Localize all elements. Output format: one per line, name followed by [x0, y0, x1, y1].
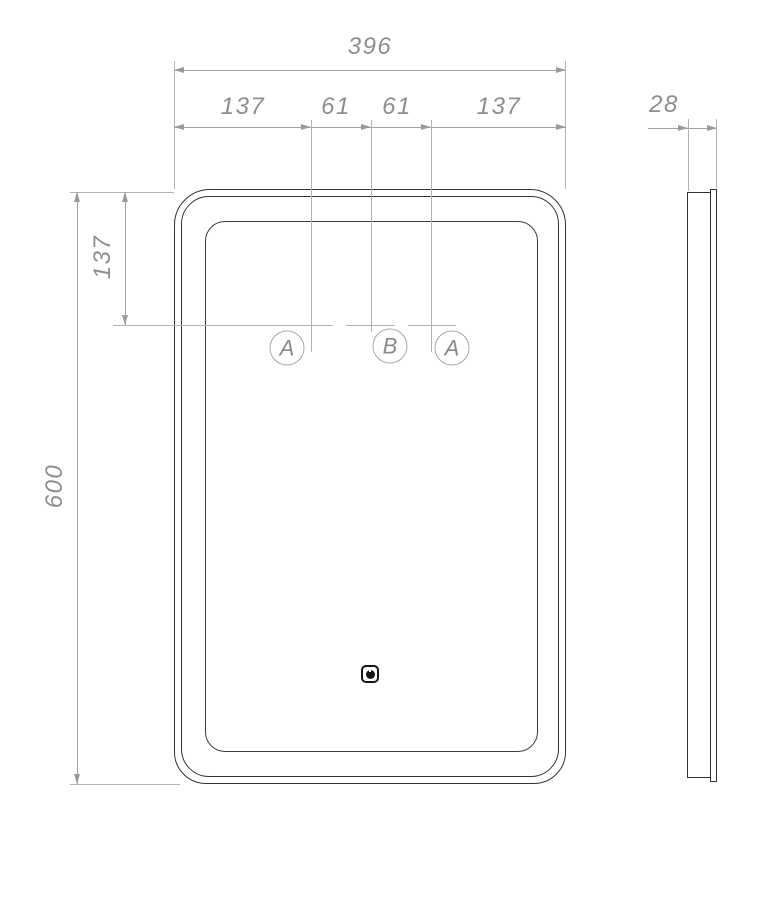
side-view-body [687, 192, 712, 778]
arrowhead-left [174, 124, 184, 130]
arrowhead-tick-1 [301, 124, 311, 130]
extension-line-mount-b [371, 120, 372, 332]
sensor-notch [369, 668, 372, 672]
extension-line-depth-right [716, 119, 717, 188]
arrowhead-left [174, 67, 184, 73]
mount-label-a2: A [445, 337, 460, 359]
mount-label-circle-a2: A [435, 331, 470, 366]
dimension-line-height-total [77, 192, 78, 784]
dimension-width-total: 396 [348, 35, 393, 59]
technical-drawing-canvas: 396 137 61 61 137 137 600 A B A 28 [0, 0, 759, 900]
side-view-glass-panel [710, 189, 717, 782]
dimension-segment-2: 61 [321, 95, 351, 119]
extension-line-mount-row-1 [113, 325, 333, 326]
extension-line-mount-a1 [311, 120, 312, 352]
extension-line-mount-row-2 [346, 325, 395, 326]
dimension-mount-offset: 137 [91, 235, 115, 280]
extension-line-mount-row-3 [408, 325, 456, 326]
dimension-depth: 28 [649, 93, 679, 117]
dimension-line-mount-offset [125, 192, 126, 325]
mount-label-circle-a1: A [270, 331, 305, 366]
arrowhead-down [122, 315, 128, 325]
extension-line-top-edge [70, 192, 174, 193]
arrowhead-right [556, 124, 566, 130]
dimension-height-total: 600 [43, 464, 67, 509]
extension-line-mount-a2 [431, 120, 432, 352]
extension-line-depth-left [688, 119, 689, 191]
mount-label-circle-b: B [373, 329, 408, 364]
arrowhead-up [122, 192, 128, 202]
dimension-line-width-total [174, 70, 566, 71]
arrowhead-down [74, 774, 80, 784]
mount-label-a1: A [280, 337, 295, 359]
mount-label-b: B [383, 335, 398, 357]
arrowhead-tick-3 [421, 124, 431, 130]
arrowhead-depth-left [678, 125, 688, 131]
arrowhead-tick-2 [361, 124, 371, 130]
arrowhead-up [74, 192, 80, 202]
dimension-segment-1: 137 [221, 95, 266, 119]
dimension-segment-4: 137 [477, 95, 522, 119]
power-touch-sensor-icon [361, 665, 379, 683]
dimension-segment-3: 61 [382, 95, 412, 119]
extension-line-bottom-edge [70, 784, 180, 785]
